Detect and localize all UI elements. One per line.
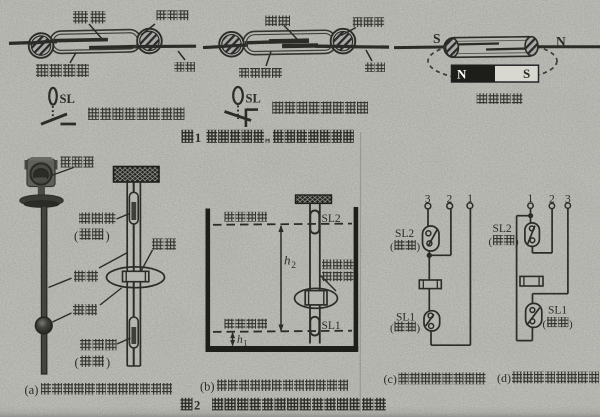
svg-text:): ) <box>569 319 573 331</box>
svg-text:1: 1 <box>243 337 247 347</box>
svg-text:SL1: SL1 <box>548 305 567 317</box>
svg-text:3: 3 <box>565 193 571 205</box>
svg-text:2: 2 <box>447 194 453 206</box>
svg-text:(a): (a) <box>25 383 39 397</box>
svg-text:1: 1 <box>467 193 473 205</box>
svg-text:): ) <box>515 236 519 248</box>
svg-text:3: 3 <box>425 194 431 206</box>
svg-text:SL: SL <box>60 92 75 106</box>
svg-text:SL: SL <box>246 92 261 106</box>
svg-text:1: 1 <box>528 193 534 205</box>
svg-text:(: ( <box>75 356 79 370</box>
svg-text:2: 2 <box>549 193 555 205</box>
svg-text:(: ( <box>74 229 78 243</box>
svg-text:(: ( <box>489 236 493 248</box>
svg-text:): ) <box>417 241 421 253</box>
svg-text:(: ( <box>390 241 394 253</box>
svg-text:(b): (b) <box>200 380 215 394</box>
svg-text:h: h <box>237 334 243 346</box>
svg-text:S: S <box>433 31 441 46</box>
svg-text:2: 2 <box>291 261 296 271</box>
svg-text:): ) <box>106 229 110 243</box>
svg-text:1: 1 <box>195 130 202 145</box>
svg-text:SL2: SL2 <box>493 223 512 235</box>
svg-text:h: h <box>284 253 291 268</box>
svg-text:S: S <box>523 66 530 81</box>
svg-text:): ) <box>417 323 421 335</box>
svg-text:SL2: SL2 <box>395 228 414 240</box>
svg-text:N: N <box>457 67 467 82</box>
svg-text:(: ( <box>390 323 394 335</box>
svg-text:(c): (c) <box>384 372 397 386</box>
svg-text:(: ( <box>543 319 547 331</box>
svg-text:N: N <box>556 34 566 49</box>
svg-text:): ) <box>106 356 110 370</box>
svg-text:(d): (d) <box>497 371 511 385</box>
